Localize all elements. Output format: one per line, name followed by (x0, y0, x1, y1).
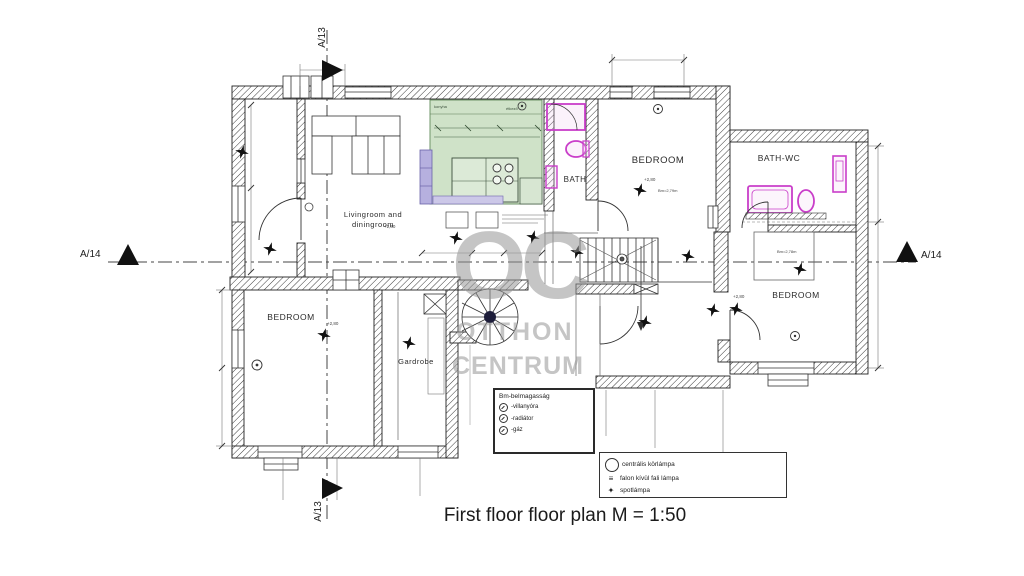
section-label-top: A/13 (317, 27, 328, 48)
legend-item-wall-lamp: falon kívül fali lámpa (620, 475, 679, 482)
section-label-bottom: A/13 (313, 501, 324, 522)
room-label-kitchen: konyha (434, 104, 447, 109)
plan-title: First floor floor plan M = 1:50 (400, 505, 730, 527)
level-bedroom-left: +2,80 (327, 321, 338, 326)
livingroom-furniture (312, 116, 400, 174)
legend-item-villanyora: -villanyóra (511, 404, 538, 410)
legend-item-spot-lamp: spotlámpa (620, 487, 650, 494)
electric-meter-icon (499, 403, 508, 412)
room-label-bath: BATH (558, 175, 592, 184)
room-label-bedroom-top: BEDROOM (620, 155, 696, 166)
section-triangle-right (896, 241, 918, 262)
section-label-right: A/14 (921, 250, 942, 261)
fine-print-lines (502, 215, 548, 223)
room-label-dining: étkező (506, 106, 518, 111)
legend-heights-title: Bm-belmagasság (499, 393, 589, 400)
kitchen-counter (433, 196, 503, 204)
room-label-bedroom-right: BEDROOM (764, 290, 828, 300)
floor-plan-drawing (0, 0, 1024, 576)
kitchen-area (420, 100, 548, 228)
section-triangle-bottom (322, 478, 343, 499)
height-bedroom-top: Bm=2,79m (658, 188, 677, 193)
bathwc-counter (746, 213, 826, 219)
level-bedroom-right: +2,80 (733, 294, 744, 299)
central-lamp-icon (605, 458, 619, 472)
legend-item-gaz: -gáz (511, 427, 523, 433)
radiator-icon (499, 414, 508, 423)
legend-lamps-box: centrális körlámpa ≡falon kívül fali lám… (599, 452, 787, 498)
height-bedroom-right: Bm=2,78m (777, 249, 796, 254)
door-hinge-symbol (305, 203, 313, 211)
wall-lamp-icon: ≡ (605, 474, 617, 483)
level-livingroom: +2,80 (384, 224, 395, 229)
bathwc-fixtures (748, 156, 846, 213)
section-triangle-left (117, 244, 139, 265)
level-bedroom-top: +2,80 (644, 177, 655, 182)
kitchen-cabinet-strip (420, 150, 432, 204)
legend-heights-box: Bm-belmagasság -villanyóra -radiátor -gá… (493, 388, 595, 454)
room-label-livingroom-2: diningroom (338, 220, 408, 229)
room-label-bedroom-left: BEDROOM (262, 312, 320, 322)
spot-lamp-icon: ✦ (605, 486, 617, 495)
legend-item-central-lamp: centrális körlámpa (622, 461, 675, 468)
floor-plan-page: OC OTTHON CENTRUM A/13 A/13 A/14 A/14 Li… (0, 0, 1024, 576)
room-label-bathwc: BATH-WC (748, 153, 810, 163)
section-label-left: A/14 (80, 249, 101, 260)
room-label-livingroom-1: Livingroom and (338, 210, 408, 219)
legend-item-radiator: -radiátor (511, 416, 533, 422)
gas-icon (499, 426, 508, 435)
room-label-gardrobe: Gardrobe (390, 357, 442, 366)
